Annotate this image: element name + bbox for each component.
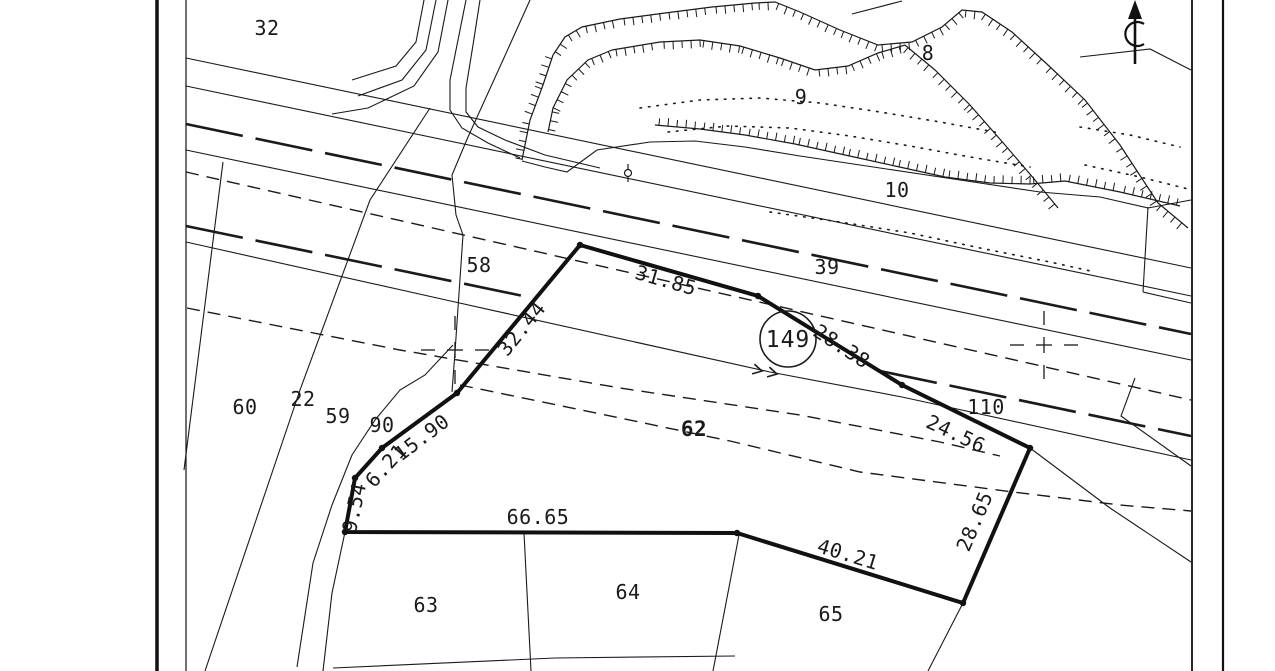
slope-tick <box>799 65 801 72</box>
cadastral-map: 149 32891039586022599011062636465 31.852… <box>0 0 1275 671</box>
measurement-label-66.65: 66.65 <box>507 505 570 529</box>
slope-tick <box>940 28 944 35</box>
parcel-label-32: 32 <box>254 16 279 40</box>
boundary-vertex <box>899 382 905 388</box>
line-direction-chevrons-icon <box>752 364 778 379</box>
road-edge-line <box>186 124 1191 334</box>
slope-tick <box>776 3 779 9</box>
slope-tick <box>801 14 804 20</box>
slope-tick <box>739 46 740 53</box>
slope-tick <box>946 86 951 91</box>
slope-tick <box>555 52 561 56</box>
measurement-label-31.85: 31.85 <box>632 260 699 300</box>
slope-tick <box>565 84 571 87</box>
map-line <box>1143 292 1191 303</box>
slope-tick <box>974 11 975 19</box>
map-line <box>358 0 436 96</box>
slope-tick <box>967 173 968 180</box>
slope-tick <box>531 94 538 97</box>
slope-tick <box>858 150 860 158</box>
slope-tick <box>1019 169 1025 174</box>
slope-tick <box>837 67 838 74</box>
slope-tick <box>651 43 652 50</box>
slope-tick <box>807 68 810 76</box>
slope-tick <box>916 40 919 46</box>
slope-tick <box>1109 139 1115 144</box>
map-line <box>186 58 1191 268</box>
slope-tick <box>860 61 863 68</box>
slope-tick <box>550 121 558 123</box>
parcel-label-110: 110 <box>967 395 1005 419</box>
map-line <box>186 150 1191 360</box>
slope-tick <box>846 66 847 74</box>
boundary-vertex <box>454 390 460 396</box>
slope-tick <box>515 158 522 159</box>
parcel-and-road-lines <box>184 0 1191 671</box>
slope-tick <box>1016 41 1021 47</box>
parcel-label-22: 22 <box>290 387 315 411</box>
slope-tick <box>916 164 918 171</box>
slope-tick <box>1046 68 1051 73</box>
slope-tick <box>516 149 524 151</box>
parcel-label-64: 64 <box>615 580 640 604</box>
parcel-label-65: 65 <box>818 602 843 626</box>
slope-tick <box>782 59 784 66</box>
slope-tick <box>1095 179 1097 187</box>
slope-tick <box>841 31 844 38</box>
boundary-vertex <box>352 475 358 481</box>
slope-tick <box>767 55 769 63</box>
map-line <box>522 141 1148 208</box>
slope-tick <box>1176 198 1178 205</box>
slope-tick <box>553 108 560 112</box>
slope-tick <box>784 135 785 142</box>
boundary-vertex <box>1027 445 1033 451</box>
slope-tick <box>725 6 726 14</box>
slope-tick <box>535 86 542 88</box>
slope-tick <box>539 74 546 76</box>
slope-tick <box>668 118 669 126</box>
dashed-boundary <box>187 308 1000 456</box>
boundary-vertex <box>755 293 761 299</box>
slope-tick <box>1098 124 1104 129</box>
slope-tick <box>625 48 626 56</box>
slope-tick <box>1124 186 1126 193</box>
slope-tick <box>1104 132 1110 136</box>
slope-tick <box>876 54 879 61</box>
slope-tick <box>988 19 992 26</box>
slope-tick <box>1140 186 1147 190</box>
slope-tick <box>1126 163 1132 167</box>
slope-tick <box>759 52 761 59</box>
slope-tick <box>1023 47 1028 52</box>
slope-tick <box>529 103 536 105</box>
slope-tick <box>825 25 828 32</box>
slope-tick <box>849 149 851 156</box>
map-line <box>186 86 1191 296</box>
slope-tick <box>705 8 706 15</box>
slope-tick <box>828 68 829 76</box>
slope-tick <box>1150 201 1157 205</box>
dashed-boundary <box>460 385 1191 511</box>
slope-tick <box>651 15 652 23</box>
slope-tick <box>932 32 935 38</box>
slope-tick <box>776 57 778 64</box>
map-line <box>450 0 520 158</box>
slope-tick <box>750 50 752 58</box>
slope-tick <box>1159 194 1161 201</box>
map-line <box>205 108 430 671</box>
measurement-label-9.54: 9.54 <box>337 481 371 535</box>
parcel-149-circle: 149 <box>760 311 816 367</box>
map-line <box>524 533 531 671</box>
slope-tick <box>604 22 605 29</box>
slope-tick <box>1010 35 1015 40</box>
slope-tick <box>1029 53 1034 59</box>
slope-tick <box>943 169 945 177</box>
slope-tick <box>976 173 977 181</box>
slope-tick <box>1163 211 1168 217</box>
slope-tick <box>908 161 910 169</box>
slope-tick <box>642 16 643 23</box>
slope-tick <box>600 55 603 62</box>
slope-tick <box>967 108 972 113</box>
slope-tick <box>979 122 984 127</box>
slope-tick <box>784 7 787 14</box>
slope-tick <box>712 42 713 50</box>
slope-tick <box>1078 99 1083 105</box>
slope-tick <box>713 123 714 131</box>
slope-tick <box>560 44 567 48</box>
slope-tick <box>1065 86 1070 92</box>
parcel-label-90: 90 <box>369 413 394 437</box>
slope-tick <box>1072 92 1077 97</box>
slope-tick <box>729 45 730 53</box>
map-line <box>713 535 739 671</box>
slope-tick <box>1002 148 1007 153</box>
slope-tick <box>1087 110 1093 115</box>
slope-tick <box>866 153 868 160</box>
slope-edge-line <box>548 50 612 132</box>
slope-tick <box>752 3 753 10</box>
slope-tick <box>585 63 590 68</box>
measurement-label-28.38: 28.38 <box>809 319 875 373</box>
slope-tick <box>933 73 938 78</box>
slope-tick <box>819 70 820 77</box>
terrain-dotted-lines <box>640 98 1188 272</box>
slope-tick <box>522 123 529 124</box>
slope-tick <box>742 47 744 54</box>
map-line <box>352 0 424 80</box>
slope-tick <box>965 10 966 17</box>
slope-tick <box>687 10 688 17</box>
slope-tick <box>557 100 563 103</box>
slope-tick <box>958 171 959 179</box>
map-line <box>333 656 735 668</box>
boundary-vertex <box>960 600 966 606</box>
slope-tick <box>695 122 696 129</box>
parcel-label-60: 60 <box>232 395 257 419</box>
slope-tick <box>882 52 884 59</box>
measurement-label-28.65: 28.65 <box>951 488 998 555</box>
slope-tick <box>678 11 679 19</box>
map-frame <box>157 0 1223 671</box>
dashed-boundary-lines <box>186 172 1191 511</box>
slope-tick <box>816 142 818 149</box>
slope-tick <box>1113 183 1115 191</box>
slope-tick <box>579 69 585 75</box>
slope-tick <box>616 49 617 56</box>
slope-tick <box>721 43 722 50</box>
slope-tick <box>934 168 936 175</box>
slope-tick <box>904 48 908 53</box>
survey-grid-cross-icon <box>421 316 489 384</box>
slope-tick <box>817 21 820 27</box>
slope-tick <box>1136 178 1142 182</box>
parcel-label-39: 39 <box>814 255 839 279</box>
slope-tick <box>758 129 759 137</box>
slope-tick <box>996 24 1000 30</box>
slope-tick <box>749 129 750 136</box>
slope-tick <box>716 7 717 14</box>
slope-tick <box>612 21 614 29</box>
slope-tick <box>985 175 986 182</box>
slope-tick <box>1069 175 1070 182</box>
slope-tick <box>704 123 705 130</box>
slope-tick <box>843 147 845 155</box>
slope-tick <box>1033 177 1034 184</box>
slope-tick <box>1130 171 1137 175</box>
slope-tick <box>793 10 796 16</box>
map-line <box>928 603 963 671</box>
slope-tick <box>964 105 970 111</box>
slope-tick <box>1007 155 1013 160</box>
parcel-label-63: 63 <box>413 593 438 617</box>
slope-tick <box>924 65 929 71</box>
slope-tick <box>875 45 878 52</box>
slope-tick <box>660 14 661 21</box>
slope-tick <box>1060 173 1061 181</box>
slope-tick <box>722 125 723 132</box>
slope-tick <box>959 13 964 18</box>
slope-hatching <box>515 2 1188 229</box>
slope-tick <box>731 125 732 133</box>
slope-tick <box>1120 156 1127 160</box>
slope-tick <box>1078 176 1080 184</box>
slope-tick <box>541 65 549 68</box>
slope-tick <box>1048 204 1054 209</box>
slope-tick <box>1133 187 1135 195</box>
slope-edge-line <box>522 55 553 160</box>
slope-tick <box>882 45 883 52</box>
slope-tick <box>592 58 595 64</box>
slope-tick <box>568 35 572 41</box>
map-line <box>466 0 600 168</box>
slope-tick <box>624 18 625 25</box>
map-line <box>852 1 902 14</box>
boundary-vertex <box>734 530 740 536</box>
map-line <box>1030 448 1191 562</box>
north-arrow-icon <box>1125 0 1144 64</box>
parcel-label-62: 62 <box>681 417 707 441</box>
slope-tick <box>703 41 704 48</box>
parcel-number-149: 149 <box>766 327 811 353</box>
slope-tick <box>549 130 556 131</box>
slope-tick <box>852 64 855 70</box>
slope-tick <box>595 24 597 32</box>
edge-measurement-labels: 31.8528.3824.5628.6540.2166.659.546.2115… <box>337 260 998 575</box>
slope-tick <box>809 17 812 24</box>
slope-tick <box>1003 29 1007 36</box>
slope-tick <box>981 14 985 20</box>
slope-tick <box>875 154 877 162</box>
slope-tick <box>572 75 577 80</box>
parcel-label-59: 59 <box>325 404 350 428</box>
slope-tick <box>743 4 744 12</box>
slope-tick <box>825 143 827 151</box>
cadastral-map-sheet: 149 32891039586022599011062636465 31.852… <box>0 0 1275 671</box>
map-line <box>184 162 223 470</box>
slope-tick <box>659 118 660 125</box>
slope-tick <box>1141 190 1143 197</box>
slope-tick <box>834 28 837 34</box>
slope-tick <box>884 157 886 164</box>
slope-tick <box>767 132 768 139</box>
slope-tick <box>834 146 836 153</box>
slope-tick <box>576 30 580 37</box>
slope-tick <box>866 41 869 48</box>
slope-tick <box>991 135 996 140</box>
map-line <box>323 532 345 671</box>
slope-tick <box>740 127 741 134</box>
slope-tick <box>849 35 852 42</box>
slope-tick <box>677 120 678 127</box>
slope-tick <box>945 24 950 29</box>
slope-tick <box>799 138 801 145</box>
slope-tick <box>1177 223 1182 229</box>
terrain-dotted-line <box>1085 165 1188 189</box>
slope-tick <box>561 92 568 96</box>
slope-tick <box>1042 175 1043 183</box>
map-line <box>1143 207 1148 292</box>
slope-tick <box>545 57 552 59</box>
slope-tick <box>608 52 611 58</box>
slope-tick <box>790 62 793 70</box>
slope-tick <box>793 136 794 144</box>
parcel-label-10: 10 <box>884 178 909 202</box>
slope-tick <box>525 111 532 114</box>
parcel-label-9: 9 <box>795 85 808 109</box>
parcel-label-8: 8 <box>922 41 935 65</box>
slope-tick <box>808 139 810 147</box>
slope-tick <box>633 17 634 25</box>
map-line <box>332 0 448 114</box>
map-line <box>297 345 453 667</box>
slope-tick <box>893 158 895 166</box>
slope-tick <box>952 19 957 25</box>
slope-tick <box>868 57 871 63</box>
parcel-label-58: 58 <box>466 253 491 277</box>
terrain-dotted-line <box>640 98 1000 133</box>
slope-tick <box>776 133 777 141</box>
slope-tick <box>1104 182 1105 189</box>
slope-tick <box>973 115 979 120</box>
slope-tick <box>951 92 957 98</box>
slope-tick <box>858 38 861 45</box>
slope-edge-line <box>553 2 1188 228</box>
slope-tick <box>910 53 915 59</box>
slope-tick <box>1059 80 1064 85</box>
measurement-label-32.44: 32.44 <box>492 297 550 361</box>
slope-tick <box>1087 178 1088 185</box>
slope-tick <box>899 160 901 167</box>
slope-tick <box>996 142 1002 147</box>
slope-tick <box>520 131 528 133</box>
slope-tick <box>669 12 670 19</box>
slope-tick <box>925 165 927 173</box>
slope-tick <box>536 82 544 85</box>
slope-tick <box>1044 197 1049 201</box>
slope-tick <box>1116 148 1122 152</box>
slope-tick <box>1052 74 1057 80</box>
terrain-dotted-line <box>1080 127 1180 147</box>
slope-tick <box>1082 103 1088 107</box>
slope-tick <box>734 5 735 12</box>
slope-tick <box>696 9 697 17</box>
slope-tick <box>958 98 963 103</box>
boundary-vertex <box>577 242 583 248</box>
slope-tick <box>643 45 644 53</box>
slope-tick <box>552 112 559 113</box>
slope-tick <box>949 171 950 178</box>
slope-tick <box>1170 217 1174 222</box>
slope-tick <box>1037 59 1042 64</box>
slope-tick <box>939 79 945 85</box>
slope-tick <box>1093 117 1099 121</box>
slope-tick <box>586 26 587 33</box>
slope-tick <box>634 46 635 53</box>
slope-tick <box>686 120 687 128</box>
slope-tick <box>1168 195 1170 203</box>
survey-grid-cross-icon <box>1010 311 1078 379</box>
slope-tick <box>1051 175 1052 182</box>
slope-tick <box>519 140 526 141</box>
